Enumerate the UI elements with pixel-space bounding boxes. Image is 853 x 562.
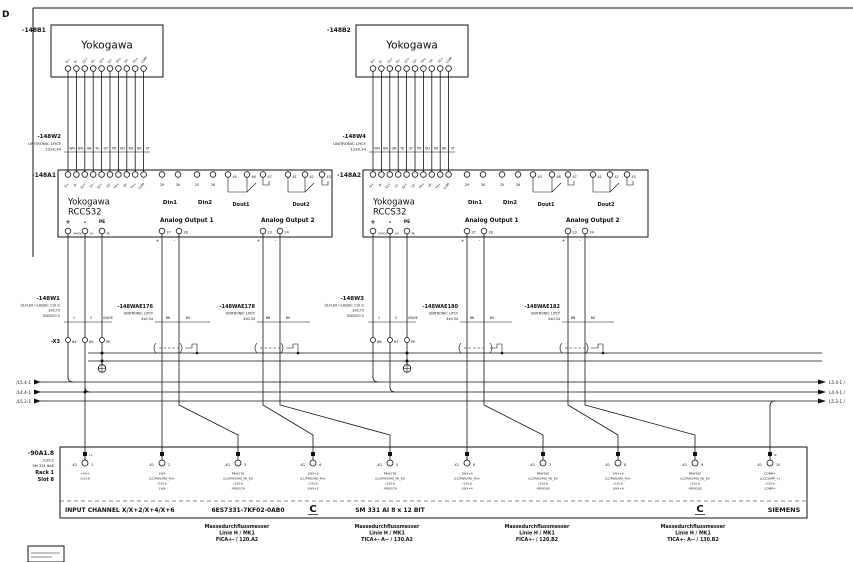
dout-terminal: [225, 172, 231, 178]
b1-name: Yokogawa: [80, 40, 133, 52]
pin-label: COM: [138, 182, 146, 190]
core-color-label: PK: [112, 147, 117, 151]
din-terminal-number: 30: [481, 183, 485, 187]
converter-maker: Yokogawa: [372, 198, 415, 208]
plc-channel-terminal: [464, 460, 470, 466]
svg-text:/120.1: /120.1: [43, 459, 55, 463]
field-device-terminal: [74, 66, 80, 72]
x3-terminal-number: 65: [89, 340, 94, 344]
dout-terminal: [590, 172, 596, 178]
converter-top-terminal: [421, 172, 427, 178]
dout-terminal: [302, 172, 308, 178]
channel-signal-label: COMP+: [764, 487, 776, 491]
plc-footer: INPUT CHANNEL X/X+2/X+4/X+6 6ES7331-7KF0…: [65, 506, 801, 514]
core-color-label: BU: [286, 316, 291, 320]
din-terminal: [515, 172, 521, 178]
channel-signal-label: 1WX: [159, 487, 166, 491]
dout-terminal-number: 46: [557, 175, 561, 179]
ao-polarity: +: [562, 238, 565, 243]
analog-output1-label: Analog Output 1: [465, 218, 519, 224]
cable-shield-icon: [154, 343, 603, 353]
title-block-fragment: [28, 546, 64, 562]
core-color-label: BU: [490, 316, 495, 320]
cable-wae178-label: -148WAE178 UNITRONIC LIYCY 4x0,34: [219, 304, 255, 321]
svg-text:4x0,34: 4x0,34: [141, 317, 153, 321]
core-color-label: BU: [120, 147, 125, 151]
plus-label: +: [370, 218, 375, 226]
converter-top-terminal: [437, 172, 443, 178]
channel-signal-label: /133.6: [462, 482, 472, 486]
channel-number: 5: [396, 463, 398, 467]
pin-label: S2-: [107, 58, 113, 64]
pin-label: COM: [443, 182, 451, 190]
converter-top-terminal: [429, 172, 435, 178]
pin-label: S1-: [394, 182, 400, 188]
dout-terminal-number: 46: [252, 175, 256, 179]
svg-text:4x0,34: 4x0,34: [446, 317, 458, 321]
din-terminal: [480, 172, 486, 178]
b2-ref: -148B2: [327, 27, 351, 34]
x1-strip-label: -X1: [224, 463, 230, 467]
ao-terminal-number: 24: [590, 231, 594, 235]
din-terminal-number: 25: [500, 183, 504, 187]
field-device-terminal: [437, 66, 443, 72]
svg-text:300/500 V: 300/500 V: [347, 314, 365, 318]
core-color-label: BU: [186, 316, 191, 320]
caption-device: Massedurchflussmesser: [205, 524, 270, 530]
dout1-label: Dout1: [537, 202, 555, 208]
svg-text:ÖLFLEX CLASSIC 110 G: ÖLFLEX CLASSIC 110 G: [324, 303, 364, 308]
converter-bottom-terminal: [565, 228, 571, 234]
channel-signal-label: +VA+: [81, 472, 90, 476]
core-color-label: GN/YE: [408, 316, 418, 320]
channel-signal-label: -PEW182: [688, 487, 702, 491]
minus-label: -: [389, 218, 392, 226]
pin-label: TP-: [427, 182, 434, 189]
din-terminal-number: 25: [195, 183, 199, 187]
field-device-terminal: [107, 66, 113, 72]
channel-pin-icon: [388, 452, 392, 456]
pin-label: S1+: [82, 56, 90, 64]
svg-text:SM 331 8AE: SM 331 8AE: [32, 464, 54, 468]
channel-pin-icon: [83, 452, 87, 456]
dout-terminal: [530, 172, 536, 178]
svg-text:4x0,34: 4x0,34: [548, 317, 560, 321]
dout-terminal-number: 45: [538, 175, 542, 179]
svg-text:UNITRONIC LIYCY: UNITRONIC LIYCY: [429, 312, 459, 316]
plc-ref-block: -90A1.8 /120.1 SM 331 8AE Rack 1 Slot 8: [28, 450, 55, 483]
power-wires: [68, 234, 407, 452]
core-color-label: BN: [266, 316, 271, 320]
caption-tag: TICA+- A-- / 130.A2: [361, 537, 413, 543]
x1-strip-label: -X1: [529, 463, 535, 467]
converter-bottom-terminal: [176, 228, 182, 234]
dout-terminal-number: 42: [310, 175, 314, 179]
din-terminal: [499, 172, 505, 178]
converter-top-terminal: [446, 172, 452, 178]
converter-top-terminal: [116, 172, 122, 178]
field-device-terminal: [65, 66, 71, 72]
svg-text:Slot 8: Slot 8: [38, 477, 55, 483]
pin-label: S2+: [96, 182, 104, 190]
dout-terminal: [607, 172, 613, 178]
ao-terminal-number: 27: [167, 231, 171, 235]
core-color-label: GY: [409, 147, 413, 151]
channel-signal-label: (LC/PWS/MO_M)+: [454, 477, 481, 481]
pin-label: S2-: [105, 182, 111, 188]
ao-polarity: +: [156, 238, 159, 243]
din-terminal-number: 29: [465, 183, 469, 187]
din2-label: Din2: [503, 200, 517, 206]
cable-wae182-label: -148WAE182 UNITRONIC LIYCY 4x0,34: [524, 304, 560, 321]
schematic-page: D -148B1 Yokogawa -148B2 Yokogawa -148W2…: [0, 0, 853, 562]
caption-line: Linie H / MK1: [219, 531, 255, 537]
converter-top-terminal: [107, 172, 113, 178]
bus-label-right: L4.4-1 /: [829, 390, 845, 395]
converter-bottom-terminal: [82, 228, 88, 234]
channel-top-label: L+: [89, 453, 94, 457]
caption-tag: FICA+- / 120.A2: [216, 537, 258, 543]
core-color-label: BN: [166, 316, 171, 320]
field-device-terminal: [90, 66, 96, 72]
field-device-terminal: [421, 66, 427, 72]
pin-label: S2+: [98, 56, 106, 64]
converter-top-terminal: [404, 172, 410, 178]
x1-strip-label: -X1: [604, 463, 610, 467]
field-device-terminal: [429, 66, 435, 72]
core-color-label: VT: [451, 147, 455, 151]
cable-w3-label: -148W3 ÖLFLEX CLASSIC 110 G 3x0,75 300/5…: [324, 296, 364, 318]
core-color-label: BU: [591, 316, 596, 320]
channel-signal-label: (LC/PWS/MO_M)_K0: [223, 477, 252, 481]
converter-top-terminal: [99, 172, 105, 178]
channel-signal-label: /133.6: [157, 482, 167, 486]
cable-wae176-label: -148WAE176 UNITRONIC LIYCY 4x0,34: [117, 304, 153, 321]
svg-text:-148W2: -148W2: [37, 134, 61, 140]
caption-tag: FICA+- / 120.B2: [516, 537, 558, 543]
svg-text:3x0,75: 3x0,75: [352, 309, 364, 313]
channel-signal-label: 1WX+6: [612, 472, 623, 476]
svg-text:-148W3: -148W3: [340, 296, 364, 302]
converter-model: RCCS32: [68, 208, 102, 218]
dout-terminal: [319, 172, 325, 178]
svg-text:UNITRONIC LIYCY: UNITRONIC LIYCY: [226, 312, 256, 316]
din1-label: Din1: [468, 200, 482, 206]
field-device-terminal: [124, 66, 130, 72]
channel-number: 3: [244, 463, 246, 467]
x1-strip-label: -X1: [299, 463, 305, 467]
core-color-label: RD: [434, 147, 439, 151]
converter-top-terminal: [132, 172, 138, 178]
pe-rails: [88, 353, 822, 361]
channel-pin-icon: [160, 452, 164, 456]
channel-signal-label: -PEW180: [536, 487, 550, 491]
converter-bottom-terminal: [277, 228, 283, 234]
channel-signal-label: 1WX+4: [461, 472, 472, 476]
svg-text:-148WAE178: -148WAE178: [219, 304, 255, 310]
field-device-terminal: [82, 66, 88, 72]
pin-label: D-: [73, 182, 78, 187]
core-color-label: PK: [417, 147, 422, 151]
converter-top-terminal: [74, 172, 80, 178]
din-terminal-number: 26: [211, 183, 215, 187]
x1-strip-label: -X1: [71, 463, 77, 467]
channel-number: 2: [168, 463, 170, 467]
pin-label: S1-: [395, 58, 401, 64]
svg-text:6ES7331-7KF02-0AB0: 6ES7331-7KF02-0AB0: [211, 507, 284, 514]
converter-top-terminal: [387, 172, 393, 178]
channel-signal-label: (LC/COMP_+): [760, 477, 780, 481]
channel-signal-label: /133.6: [613, 482, 623, 486]
svg-text:SM 331 AI 8 x 12 BIT: SM 331 AI 8 x 12 BIT: [355, 507, 425, 514]
converter-top-terminal: [124, 172, 130, 178]
channel-pin-icon: [236, 452, 240, 456]
channel-signal-label: (LC/PWS/MO_M)_K0: [528, 477, 557, 481]
converter-bottom-terminal: [65, 228, 71, 234]
pin-label: S1-: [89, 182, 95, 188]
core-color-label: WH: [69, 147, 75, 151]
caption-line: Linie H / MK1: [369, 531, 405, 537]
channel-signal-label: (LC/PWS/MO_M)_K0: [375, 477, 404, 481]
x3-terminal-number: PE: [411, 340, 416, 344]
bus-junction-knees: [68, 377, 775, 406]
plc-channel-terminal: [82, 460, 88, 466]
core-color-label: RD: [129, 147, 134, 151]
channel-signal-label: (LC/PWS/MO_M)+: [149, 477, 176, 481]
core-color-label: 2: [395, 316, 397, 320]
core-color-label: BN: [571, 316, 576, 320]
dout-terminal-number: 45: [233, 175, 237, 179]
cable-wae180-label: -148WAE180 UNITRONIC LIYCY 4x0,34: [422, 304, 458, 321]
zone-col-label: C: [309, 504, 316, 515]
channel-signal-label: -PEW176: [231, 487, 245, 491]
svg-text:UNITRONIC LIYCY: UNITRONIC LIYCY: [28, 141, 61, 146]
core-color-label: 1: [378, 316, 380, 320]
channel-signal-label: /133.6: [765, 482, 775, 486]
converter-bottom-terminal: [99, 228, 105, 234]
ao-polarity: -: [479, 238, 481, 243]
core-color-label: YE: [95, 147, 99, 151]
supply-sublabel: 0V: [395, 232, 399, 236]
dout-terminal: [244, 172, 250, 178]
core-color-label: 1: [73, 316, 75, 320]
svg-text:UNITRONIC LIYCY: UNITRONIC LIYCY: [333, 141, 366, 146]
pin-label: D-: [378, 59, 383, 64]
pin-label: S2+: [401, 182, 409, 190]
supply-sublabel: PE: [412, 232, 416, 236]
converter-maker: Yokogawa: [67, 198, 110, 208]
pin-label: S2-: [412, 58, 418, 64]
pin-label: TP+: [419, 56, 427, 65]
field-device-terminal: [395, 66, 401, 72]
channel-number: 4: [319, 463, 321, 467]
field-device-terminal: [404, 66, 410, 72]
svg-text:-148WAE180: -148WAE180: [422, 304, 458, 310]
converter-bottom-terminal: [582, 228, 588, 234]
channel-signal-label: PEW178: [384, 472, 396, 476]
zone-row-label: D: [2, 10, 9, 20]
ao-terminal-number: 28: [184, 231, 188, 235]
bus-label-left: /L4.4-1: [16, 390, 31, 395]
channel-signal-label: /133.6: [80, 477, 90, 481]
channel-signal-label: 1WX+4: [461, 487, 472, 491]
converter-top-terminal: [90, 172, 96, 178]
converter-top-terminal: [82, 172, 88, 178]
ao-terminal-number: 23: [268, 231, 272, 235]
x3-terminals: [66, 338, 410, 343]
pin-label: S2-: [410, 182, 416, 188]
x3-terminal-number: PE: [106, 340, 111, 344]
dout-terminal-number: 43: [632, 175, 636, 179]
converter-top-terminal: [412, 172, 418, 178]
channel-signal-label: PEW180: [537, 472, 549, 476]
dout2-label: Dout2: [597, 202, 615, 208]
pin-label: TP-: [122, 182, 129, 189]
plc-channel-terminal: [767, 460, 773, 466]
svg-text:-148W1: -148W1: [36, 296, 60, 302]
converter-bottom-terminal: [260, 228, 266, 234]
caption-line: Linie H / MK1: [519, 531, 555, 537]
channel-pin-icon: [465, 452, 469, 456]
pin-label: D+: [368, 182, 375, 189]
plus-label: +: [65, 218, 70, 226]
field-device-terminal: [446, 66, 452, 72]
channel-signal-label: (LC/PWS/MO_M)+: [300, 477, 327, 481]
pin-label: S1+: [384, 182, 392, 190]
core-color-label: GY: [104, 147, 108, 151]
ao-polarity: +: [257, 238, 260, 243]
plc-channel-terminal: [540, 460, 546, 466]
ao-polarity: -: [275, 238, 277, 243]
channel-pin-icon: [693, 452, 697, 456]
caption-line: Linie H / MK1: [675, 531, 711, 537]
svg-text:SIEMENS: SIEMENS: [768, 506, 801, 514]
bus-label-right: L5.2-1 /: [829, 399, 845, 404]
ao-terminal-number: 27: [472, 231, 476, 235]
generated-elements: D+D+WHD-D-BNS1+S1+GNS1-S1-YES2+S2+GYS2-S…: [16, 56, 845, 543]
channel-number: 6: [473, 463, 475, 467]
field-device-terminal: [387, 66, 393, 72]
x1-strip-label: -X1: [681, 463, 687, 467]
x3-terminal-number: 66: [377, 340, 382, 344]
pin-label: D+: [370, 57, 377, 64]
x1-strip-label: -X1: [756, 463, 762, 467]
pe-label: PE: [99, 219, 105, 225]
core-color-label: GN: [392, 147, 397, 151]
svg-text:UNITRONIC LIYCY: UNITRONIC LIYCY: [124, 312, 154, 316]
core-color-label: GN/YE: [103, 316, 113, 320]
field-device-terminal: [370, 66, 376, 72]
converter-bottom-terminal: [464, 228, 470, 234]
channel-signal-label: 1WX: [159, 472, 166, 476]
channel-signal-label: PEW182: [689, 472, 701, 476]
svg-text:300/500 V: 300/500 V: [43, 314, 61, 318]
svg-text:INPUT CHANNEL X/X+2/X+4/X+6: INPUT CHANNEL X/X+2/X+4/X+6: [65, 507, 175, 514]
x1-strip-label: -X1: [453, 463, 459, 467]
pin-label: TS+: [436, 56, 444, 65]
channel-signal-label: COMP+: [764, 472, 776, 476]
channel-number: 8: [624, 463, 626, 467]
channel-signal-label: /133.6: [308, 482, 318, 486]
din2-label: Din2: [198, 200, 212, 206]
din-terminal-number: 26: [516, 183, 520, 187]
analog-output1-label: Analog Output 1: [160, 218, 214, 224]
b2-name: Yokogawa: [385, 40, 438, 52]
dout-terminal: [260, 172, 266, 178]
supply-sublabel: PE: [107, 232, 111, 236]
analog-output2-label: Analog Output 2: [566, 218, 620, 224]
svg-text:-148W4: -148W4: [342, 134, 366, 140]
pin-label: D-: [378, 182, 383, 187]
plc-channel-terminal: [159, 460, 165, 466]
core-color-label: BK: [442, 147, 447, 151]
core-color-label: BU: [425, 147, 430, 151]
core-color-label: BN: [78, 147, 83, 151]
din-terminal: [175, 172, 181, 178]
channel-signal-label: /133.6: [233, 482, 243, 486]
caption-device: Massedurchflussmesser: [355, 524, 420, 530]
core-color-label: BK: [137, 147, 142, 151]
converter-top-terminal: [379, 172, 385, 178]
pe-label: PE: [404, 219, 410, 225]
ao-terminal-number: 23: [573, 231, 577, 235]
converter-top-terminal: [395, 172, 401, 178]
pin-label: D+: [63, 182, 70, 189]
dout-terminal-number: 43: [327, 175, 331, 179]
din-terminal-number: 30: [176, 183, 180, 187]
x3-terminal-number: 67: [394, 340, 399, 344]
dout-terminal: [624, 172, 630, 178]
dout-terminal-number: 41: [293, 175, 297, 179]
pin-label: S1-: [90, 58, 96, 64]
bus-label-left: /L5.4-1: [16, 380, 31, 385]
channel-signal-label: 1WX+6: [612, 487, 623, 491]
minus-label: -: [84, 218, 87, 226]
plc-channel-terminal: [310, 460, 316, 466]
channel-number: 10: [776, 463, 780, 467]
core-color-label: WH: [374, 147, 380, 151]
channel-pin-icon: [311, 452, 315, 456]
caption-device: Massedurchflussmesser: [505, 524, 570, 530]
supply-sublabel: 24VDC: [378, 232, 388, 236]
converter-model: RCCS32: [373, 208, 407, 218]
a2-ref: -148A2: [337, 172, 361, 179]
pin-label: S1+: [387, 56, 395, 64]
converter-bottom-terminal: [159, 228, 165, 234]
supply-sublabel: 24VDC: [73, 232, 83, 236]
cable-w1-label: -148W1 ÖLFLEX CLASSIC 110 G 3x0,75 300/5…: [20, 296, 60, 318]
x1-strip-label: -X1: [376, 463, 382, 467]
channel-signal-label: -PEW178: [383, 487, 397, 491]
field-device-terminal: [116, 66, 122, 72]
caption-tag: TICA+- A-- / 130.B2: [667, 537, 719, 543]
dout2-label: Dout2: [292, 202, 310, 208]
pin-label: TS+: [131, 56, 139, 65]
pin-label: TS+: [434, 182, 442, 191]
caption-device: Massedurchflussmesser: [661, 524, 726, 530]
channel-pin-icon: [616, 452, 620, 456]
dout-terminal: [285, 172, 291, 178]
cable-w4-label: -148W4 UNITRONIC LIYCY 12x0,34: [333, 134, 366, 152]
pin-label: S1+: [79, 182, 87, 190]
bus-label-left: /L5.2-1: [16, 399, 31, 404]
plc-channel-terminal: [692, 460, 698, 466]
pin-label: D-: [73, 59, 78, 64]
core-color-label: YE: [400, 147, 404, 151]
core-color-label: BN: [470, 316, 475, 320]
svg-text:4x0,34: 4x0,34: [243, 317, 255, 321]
field-device-terminal: [132, 66, 138, 72]
